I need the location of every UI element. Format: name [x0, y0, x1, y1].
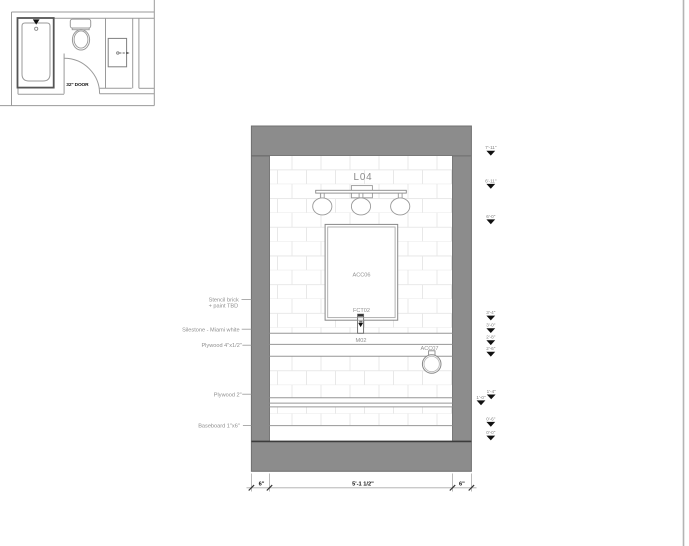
svg-text:FCT02: FCT02 [353, 308, 370, 314]
svg-text:5'-1 1/2": 5'-1 1/2" [352, 482, 374, 488]
svg-text:M02: M02 [356, 338, 367, 344]
svg-text:7'-11": 7'-11" [485, 145, 497, 150]
svg-text:2'-6": 2'-6" [486, 346, 496, 351]
svg-text:3'-4": 3'-4" [486, 310, 496, 315]
svg-text:Plywood 2": Plywood 2" [214, 392, 242, 398]
svg-text:6'-0": 6'-0" [486, 214, 496, 219]
svg-text:6": 6" [259, 482, 265, 488]
svg-text:6'-11": 6'-11" [485, 178, 497, 183]
svg-text:ACC06: ACC06 [352, 273, 370, 279]
svg-text:32" DOOR: 32" DOOR [66, 82, 89, 88]
svg-text:+ paint TBD: + paint TBD [209, 304, 239, 310]
svg-text:Baseboard 1"x6": Baseboard 1"x6" [198, 424, 240, 430]
svg-text:1'-4": 1'-4" [487, 389, 497, 394]
svg-text:6": 6" [459, 482, 465, 488]
svg-text:1'-0": 1'-0" [476, 395, 486, 400]
svg-text:0'-0": 0'-0" [486, 430, 496, 435]
svg-text:Silestone - Miami white: Silestone - Miami white [182, 327, 240, 333]
svg-text:3'-0": 3'-0" [486, 323, 496, 328]
svg-text:L04: L04 [353, 172, 372, 183]
svg-text:0'-6": 0'-6" [486, 416, 496, 421]
svg-text:2'-8": 2'-8" [486, 335, 496, 340]
svg-text:Plywood 4"x1/2": Plywood 4"x1/2" [201, 343, 241, 349]
svg-text:Stencil brick: Stencil brick [209, 297, 239, 303]
